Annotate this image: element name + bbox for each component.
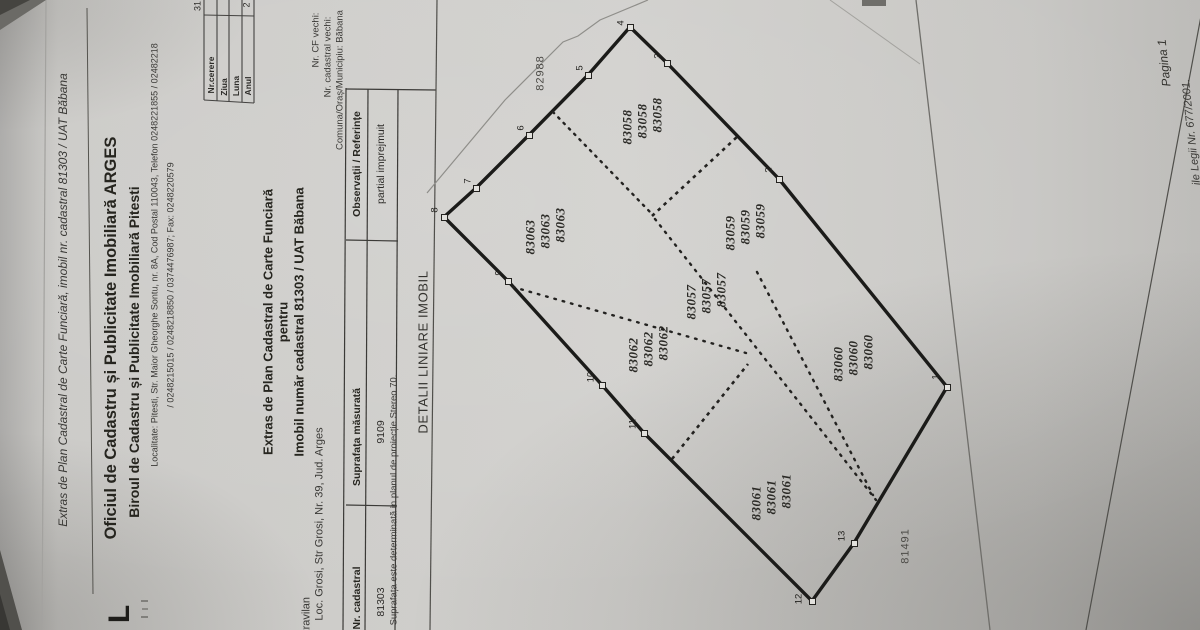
neighbor-boundary-82988-line (427, 0, 648, 193)
doc-reference-line: Extras de Plan Cadastral de Carte Funcia… (57, 73, 69, 527)
office-address-line2: / 0248215015 / 0248218850 / 0374476987; … (167, 162, 176, 407)
section-separator-line (430, 0, 437, 630)
office-address-line1: Localitate: Pitesti, Str. Maior Gheorghe… (151, 43, 160, 466)
vertex-number-label: 3 (653, 53, 663, 58)
neighbor-parcel-number: 82988 (536, 55, 547, 91)
parcel-number-label: 83063 (539, 214, 552, 249)
page-edge-line (42, 0, 46, 630)
parcel-number-label: 83060 (847, 341, 860, 376)
request-table-label-nrcerere: Nr.cerere (207, 57, 216, 94)
property-zone: intravilan (302, 597, 313, 630)
request-table-label-ziua: Ziua (220, 78, 229, 95)
parcel-number-label: 83060 (832, 347, 845, 382)
main-table-value-observatii: partial imprejmuit (376, 124, 387, 204)
vertex-tick-marker (851, 540, 858, 547)
parcel-number-label: 83060 (862, 335, 875, 370)
document-linework (0, 0, 1200, 630)
main-table-header-observatii: Observații / Referințe (352, 111, 363, 217)
label-comuna-oras-municipiu: Comuna/Oraș/Municipiu: Băbana (335, 10, 345, 150)
neighbor-parcel-number: 81491 (901, 528, 912, 564)
vertex-tick-marker (526, 132, 533, 139)
parcel-number-label: 83058 (621, 110, 634, 145)
parcel-number-label: 83059 (724, 216, 737, 251)
projection-note: Suprafața este determinată in planul de … (389, 375, 399, 626)
vertex-tick-marker (585, 72, 592, 79)
vertex-tick-marker (627, 24, 634, 31)
office-name-line1: Oficiul de Cadastru și Publicitate Imobi… (103, 137, 120, 540)
logo-detail-mark (142, 608, 148, 610)
request-table-label-luna: Luna (232, 76, 241, 96)
vertex-tick-marker (473, 185, 480, 192)
vertex-number-label: 4 (616, 20, 626, 25)
vertex-tick-marker (441, 214, 448, 221)
vertex-tick-marker (944, 384, 951, 391)
vertex-number-label: 8 (430, 207, 440, 212)
parcel-number-label: 83057 (715, 273, 728, 308)
doc-title-line2: pentru (277, 302, 290, 342)
vertex-tick-marker (664, 60, 671, 67)
label-nr-cf-vechi: Nr. CF vechi: (311, 13, 321, 68)
main-table-header-nr-cadastral: Nr. cadastral (352, 566, 363, 629)
parcel-number-label: 83059 (754, 204, 767, 239)
property-address: Loc. Grosi, Str Grosi, Nr. 39, Jud. Arge… (315, 427, 326, 620)
doc-ref-underline (87, 8, 93, 594)
parcel-number-label: 83057 (685, 285, 698, 320)
photographed-cadastral-document: Extras de Plan Cadastral de Carte Funcia… (0, 0, 1200, 630)
doc-title-line3: Imobil număr cadastral 81303 / UAT Băban… (293, 187, 306, 456)
neighbor-boundary-segment (830, 0, 920, 64)
office-name-line2: Biroul de Cadastru și Publicitate Imobil… (127, 186, 141, 517)
parcel-number-label: 83058 (636, 104, 649, 139)
parcel-number-label: 83062 (627, 338, 640, 373)
vertex-number-label: 9 (494, 270, 504, 275)
vertex-number-label: 6 (516, 125, 526, 130)
doc-title-line1: Extras de Plan Cadastral de Carte Funcia… (262, 189, 275, 455)
parcel-number-label: 83062 (642, 332, 655, 367)
vertex-number-label: 7 (463, 178, 473, 183)
vertex-number-label: 10 (586, 372, 596, 383)
edge-smudge (862, 0, 886, 6)
parcel-number-label: 83061 (750, 486, 763, 521)
main-table-value-suprafata: 9109 (376, 420, 387, 443)
main-table-header-suprafata: Suprafața măsurată (352, 388, 363, 486)
vertex-tick-marker (776, 176, 783, 183)
parcel-number-label: 83063 (524, 220, 537, 255)
parcel-number-label: 83062 (657, 326, 670, 361)
parcel-number-label: 83063 (554, 208, 567, 243)
label-nr-cadastral-vechi: Nr. cadastral vechi: (323, 17, 333, 98)
logo-detail-mark (141, 600, 148, 602)
vertex-tick-marker (505, 278, 512, 285)
vertex-number-label: 2 (764, 167, 774, 172)
agency-logo: L (105, 605, 135, 623)
logo-detail-mark (141, 616, 148, 618)
vertex-number-label: 5 (575, 65, 585, 70)
parcel-number-label: 83061 (780, 474, 793, 509)
request-table-value-anul: 2 (243, 2, 252, 7)
parcel-number-label: 83058 (651, 98, 664, 133)
vertex-number-label: 13 (837, 531, 847, 542)
parcel-number-label: 83059 (739, 210, 752, 245)
vertex-number-label: 11 (628, 419, 638, 429)
vertex-tick-marker (599, 382, 606, 389)
request-table-label-anul: Anul (244, 77, 253, 96)
vertex-number-label: 1 (931, 374, 941, 379)
vertex-tick-marker (809, 598, 816, 605)
request-table-value-nrcerere: 31 (194, 1, 203, 11)
parcel-number-label: 83057 (700, 279, 713, 314)
section-label-detalii-liniare: DETALII LINIARE IMOBIL (417, 270, 430, 433)
main-table-value-nr-cadastral: 81303 (376, 587, 387, 616)
vertex-tick-marker (641, 430, 648, 437)
vertex-number-label: 12 (794, 594, 804, 605)
parcel-number-label: 83061 (765, 480, 778, 515)
neighbor-boundary-81491-line (916, 0, 990, 630)
